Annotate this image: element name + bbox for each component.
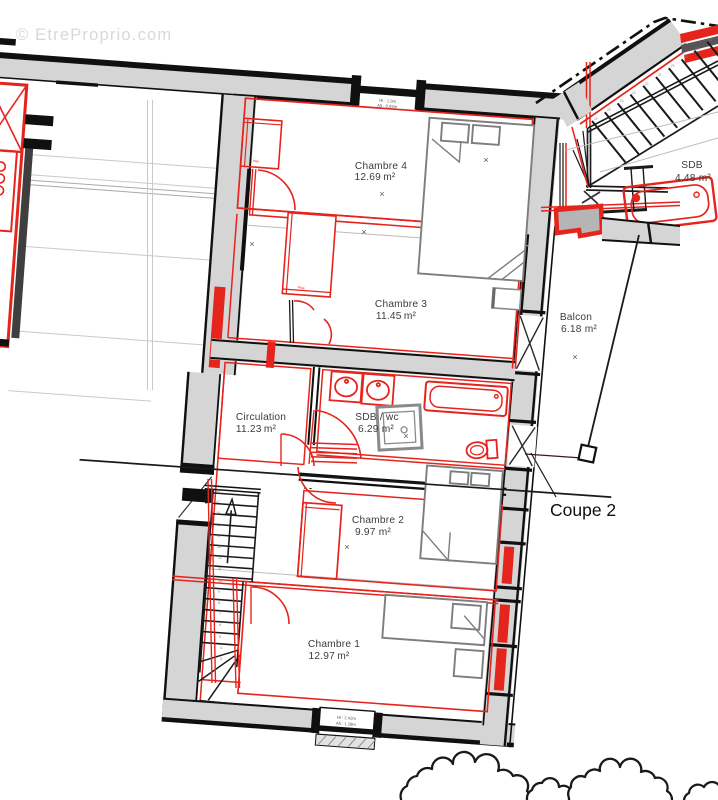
svg-text:3: 3 bbox=[220, 657, 222, 661]
svg-text:4.48 m²: 4.48 m² bbox=[675, 173, 711, 184]
svg-text:13: 13 bbox=[217, 545, 221, 549]
svg-text:7: 7 bbox=[219, 612, 221, 616]
svg-text:10: 10 bbox=[218, 579, 222, 583]
svg-text:15: 15 bbox=[217, 523, 221, 527]
svg-text:4: 4 bbox=[220, 646, 222, 650]
svg-text:Coupe 2: Coupe 2 bbox=[550, 500, 616, 520]
svg-text:9.97 m²: 9.97 m² bbox=[355, 527, 391, 538]
svg-text:×: × bbox=[572, 352, 577, 362]
svg-text:Chambre 2: Chambre 2 bbox=[352, 515, 404, 526]
svg-text:11.45 m²: 11.45 m² bbox=[376, 311, 417, 322]
svg-text:18: 18 bbox=[696, 47, 700, 51]
svg-text:21: 21 bbox=[658, 73, 662, 77]
svg-text:11.23 m²: 11.23 m² bbox=[236, 424, 277, 435]
svg-text:26: 26 bbox=[594, 117, 598, 121]
svg-text:Balcon: Balcon bbox=[560, 312, 592, 323]
svg-text:12: 12 bbox=[218, 556, 222, 560]
svg-text:14: 14 bbox=[217, 534, 221, 538]
svg-text:9: 9 bbox=[218, 590, 220, 594]
svg-text:Plac.: Plac. bbox=[253, 159, 260, 164]
svg-text:23: 23 bbox=[632, 91, 636, 95]
svg-text:8: 8 bbox=[218, 601, 220, 605]
svg-text:Chambre 1: Chambre 1 bbox=[308, 639, 360, 650]
svg-text:19: 19 bbox=[684, 55, 688, 59]
svg-text:11: 11 bbox=[218, 567, 222, 571]
svg-text:×: × bbox=[344, 542, 349, 552]
svg-text:20: 20 bbox=[671, 64, 675, 68]
svg-text:12.69 m²: 12.69 m² bbox=[354, 172, 395, 183]
svg-text:SDB: SDB bbox=[681, 160, 703, 171]
svg-text:16: 16 bbox=[216, 511, 220, 515]
svg-text:6.18 m²: 6.18 m² bbox=[561, 324, 597, 335]
svg-text:18: 18 bbox=[216, 489, 220, 493]
svg-text:22: 22 bbox=[645, 82, 649, 86]
svg-text:×: × bbox=[361, 227, 366, 237]
svg-text:SDB / wc: SDB / wc bbox=[355, 412, 399, 423]
svg-text:×: × bbox=[403, 431, 408, 441]
svg-text:17: 17 bbox=[709, 38, 713, 42]
svg-text:6.29 m²: 6.29 m² bbox=[358, 424, 394, 435]
svg-text:Chambre 3: Chambre 3 bbox=[375, 299, 427, 310]
svg-text:25: 25 bbox=[607, 108, 611, 112]
svg-text:17: 17 bbox=[216, 500, 220, 504]
svg-text:×: × bbox=[483, 155, 488, 165]
svg-text:24: 24 bbox=[620, 99, 624, 103]
svg-text:Circulation: Circulation bbox=[236, 412, 286, 423]
svg-text:×: × bbox=[379, 189, 384, 199]
svg-text:Plac.: Plac. bbox=[298, 286, 306, 291]
svg-text:5: 5 bbox=[219, 635, 221, 639]
svg-text:12.97 m²: 12.97 m² bbox=[308, 651, 349, 662]
svg-text:Chambre 4: Chambre 4 bbox=[355, 161, 407, 172]
svg-text:6: 6 bbox=[219, 623, 221, 627]
svg-text:© EtreProprio.com: © EtreProprio.com bbox=[16, 26, 172, 44]
svg-text:×: × bbox=[249, 239, 254, 249]
